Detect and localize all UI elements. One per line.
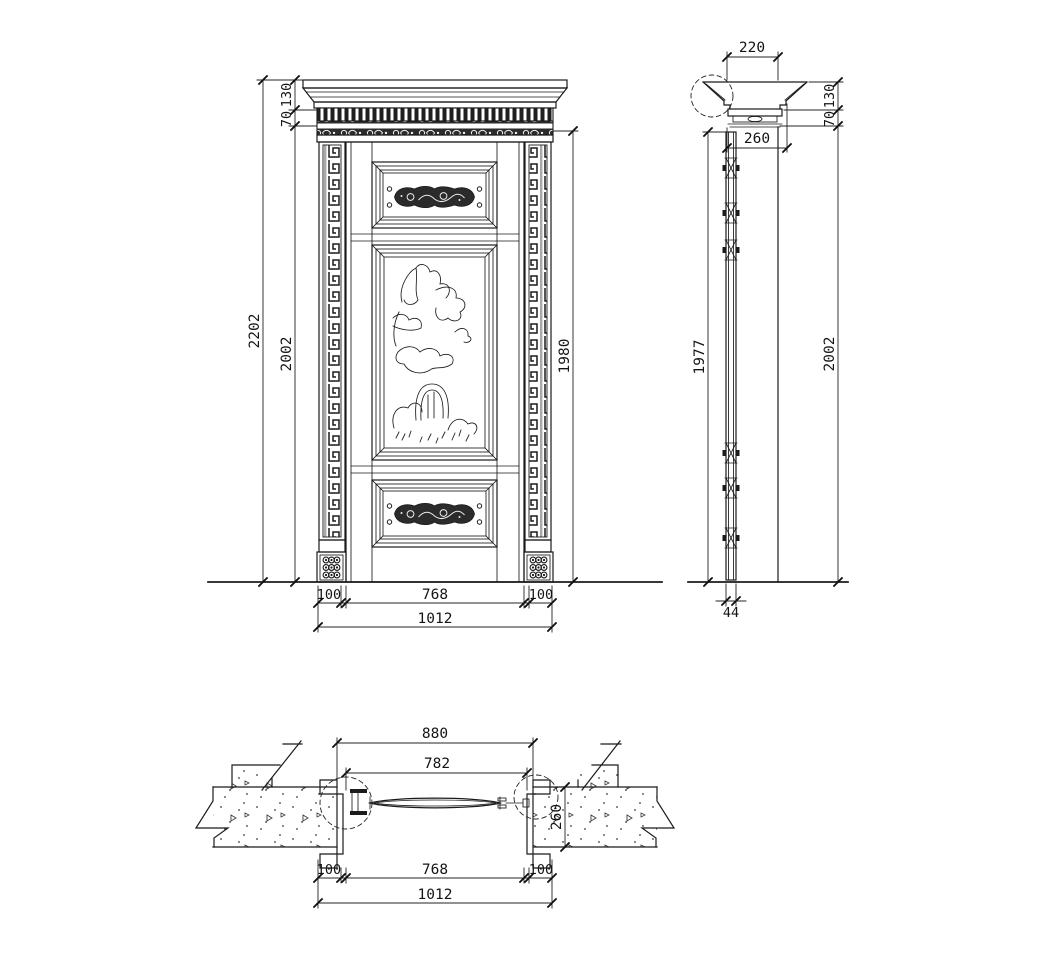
latch-hardware xyxy=(498,798,529,808)
center-carved-panel xyxy=(372,245,497,460)
dim-label-head-depth: 260 xyxy=(744,131,770,147)
cornice xyxy=(303,80,567,142)
dim-label-cornice-height: 130 xyxy=(279,83,295,107)
pilaster-plinth xyxy=(525,540,551,552)
side-elevation-view: 220 260 130 70 2002 1977 44 xyxy=(688,40,848,621)
dim-width-chain: 100 768 100 xyxy=(314,586,556,608)
dim-label-opening-width: 782 xyxy=(424,756,450,772)
door-cad-drawing: 2202 130 70 2002 1980 100 768 100 1012 xyxy=(0,0,1050,959)
frieze-band xyxy=(317,121,553,135)
dim-label-side-frieze-height: 70 xyxy=(822,111,838,127)
door-leaf xyxy=(346,142,524,582)
dim-label-frieze-height: 70 xyxy=(279,111,295,127)
crown-molding xyxy=(303,88,567,102)
scroll-carving xyxy=(387,186,481,207)
dim-leaf-thickness: 44 xyxy=(716,584,746,621)
pilaster-plinth xyxy=(319,540,345,552)
dim-label-leaf-thickness: 44 xyxy=(723,605,739,621)
hinge-symbol xyxy=(723,203,740,223)
left-pilaster xyxy=(317,142,346,582)
dim-opening-width: 782 xyxy=(342,756,531,790)
crown-top-slab xyxy=(303,80,567,88)
dim-label-leaf-width: 768 xyxy=(422,587,448,603)
dim-label-left-jamb: 100 xyxy=(317,862,341,878)
dentil-band xyxy=(317,108,553,121)
bottom-carved-panel xyxy=(372,480,497,547)
right-wall-section xyxy=(533,741,674,847)
hinge-symbol xyxy=(723,443,740,463)
hinge-symbol xyxy=(723,528,740,548)
dim-label-wall-thickness: 260 xyxy=(549,804,565,830)
cornice-section xyxy=(703,82,807,127)
left-wall-section xyxy=(196,741,337,847)
landscape-carving xyxy=(393,265,477,443)
architrave-bar xyxy=(317,135,553,142)
dim-side-height-chain: 130 70 2002 xyxy=(780,78,843,586)
dim-opening-height: 1980 xyxy=(553,127,578,586)
dim-leaf-height: 1977 xyxy=(692,128,726,586)
dim-overall-width: 1012 xyxy=(314,608,556,632)
dim-label-plan-overall-width: 1012 xyxy=(418,887,453,903)
hinge-symbol xyxy=(723,240,740,260)
dim-label-plan-leaf-width: 768 xyxy=(422,862,448,878)
dim-cornice-depth: 220 xyxy=(723,40,782,80)
dim-plan-width-chain: 100 768 100 xyxy=(314,860,556,883)
detail-callout-circle xyxy=(691,75,733,117)
dim-label-leaf-height: 1977 xyxy=(692,340,708,375)
dim-label-left-pilaster: 100 xyxy=(317,587,341,603)
pilaster-base-block xyxy=(524,552,553,582)
greek-key-pattern xyxy=(529,145,547,537)
door-leaf-section xyxy=(723,132,740,580)
greek-key-pattern xyxy=(323,145,341,537)
dim-label-overall-height: 2202 xyxy=(247,314,263,349)
hinge-symbol xyxy=(723,158,740,178)
dim-plan-overall-width: 1012 xyxy=(314,883,556,908)
hinge-symbol xyxy=(723,478,740,498)
dim-label-overall-width: 1012 xyxy=(418,611,453,627)
right-pilaster xyxy=(524,142,553,582)
miter-joints xyxy=(372,245,497,460)
dim-label-frame-width: 880 xyxy=(422,726,448,742)
dim-label-opening-height: 1980 xyxy=(557,339,573,374)
dim-label-right-pilaster: 100 xyxy=(529,587,553,603)
dim-label-side-frame-height: 2002 xyxy=(822,337,838,372)
plan-section-view: 880 782 100 768 100 1012 260 xyxy=(196,726,674,908)
dim-label-side-cornice-height: 130 xyxy=(822,84,838,108)
front-elevation-view: 2202 130 70 2002 1980 100 768 100 1012 xyxy=(208,76,662,632)
pilaster-base-block xyxy=(317,552,346,582)
dim-label-right-jamb: 100 xyxy=(529,862,553,878)
hinge-hardware xyxy=(350,789,367,815)
dim-label-cornice-depth: 220 xyxy=(739,40,765,56)
cad-sheet: 2202 130 70 2002 1980 100 768 100 1012 xyxy=(0,0,1050,959)
top-carved-panel xyxy=(372,162,497,228)
dim-cornice-frieze-frame: 130 70 2002 xyxy=(279,76,317,586)
bed-molding-detail xyxy=(748,116,762,121)
door-leaf-plan xyxy=(350,789,529,815)
crown-fascia xyxy=(314,102,556,108)
scroll-carving xyxy=(387,503,481,524)
dim-label-frame-height: 2002 xyxy=(279,337,295,372)
